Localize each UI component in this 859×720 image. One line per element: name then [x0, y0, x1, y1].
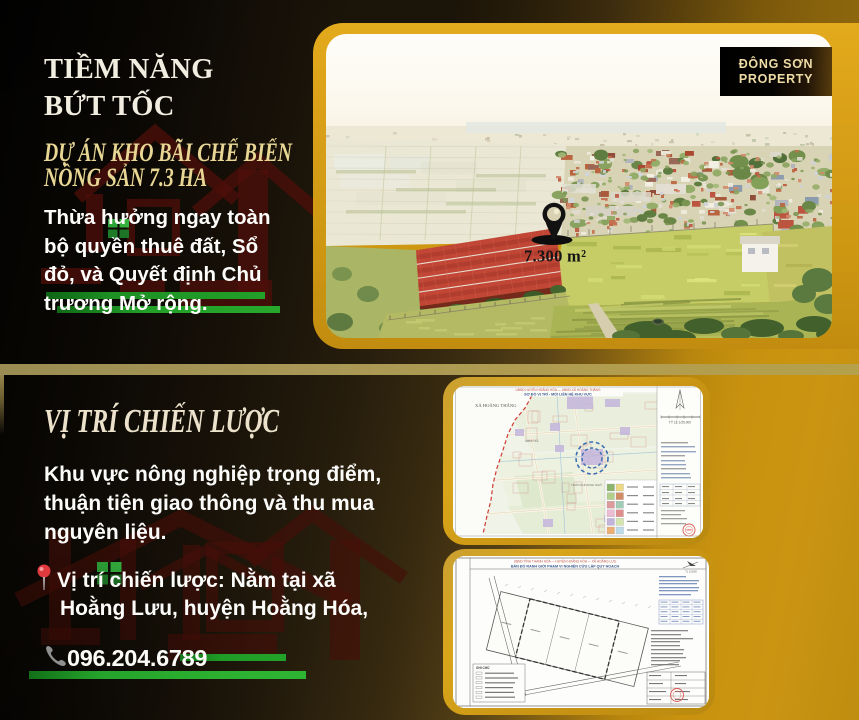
svg-text:THÔN PHƯỢNG NGÔ: THÔN PHƯỢNG NGÔ [571, 482, 602, 487]
svg-text:UBND TỈNH THANH HÓA — HUYỆN HO: UBND TỈNH THANH HÓA — HUYỆN HOẰNG HÓA — … [514, 559, 617, 564]
svg-text:TL 1/2000: TL 1/2000 [685, 570, 697, 574]
svg-text:GHI CHÚ: GHI CHÚ [476, 665, 490, 670]
svg-text:7.300 m²: 7.300 m² [524, 247, 586, 266]
svg-text:XÃ HOẰNG THẮNG: XÃ HOẰNG THẮNG [475, 402, 517, 408]
svg-text:UBND HUYỆN HOẰNG HÓA — UBND XÃ: UBND HUYỆN HOẰNG HÓA — UBND XÃ HOẰNG THẮ… [516, 387, 601, 392]
svg-text:UBND XÃ: UBND XÃ [525, 438, 538, 443]
svg-text:BẢN ĐỒ RANH GIỚI PHẠM VI NGHIÊ: BẢN ĐỒ RANH GIỚI PHẠM VI NGHIÊN CỨU LẬP … [511, 564, 620, 569]
svg-text:SƠ ĐỒ VỊ TRÍ - MỐI LIÊN HỆ KHU: SƠ ĐỒ VỊ TRÍ - MỐI LIÊN HỆ KHU VỰC [524, 392, 592, 397]
svg-text:TỶ LỆ 1/25.000: TỶ LỆ 1/25.000 [669, 420, 691, 425]
